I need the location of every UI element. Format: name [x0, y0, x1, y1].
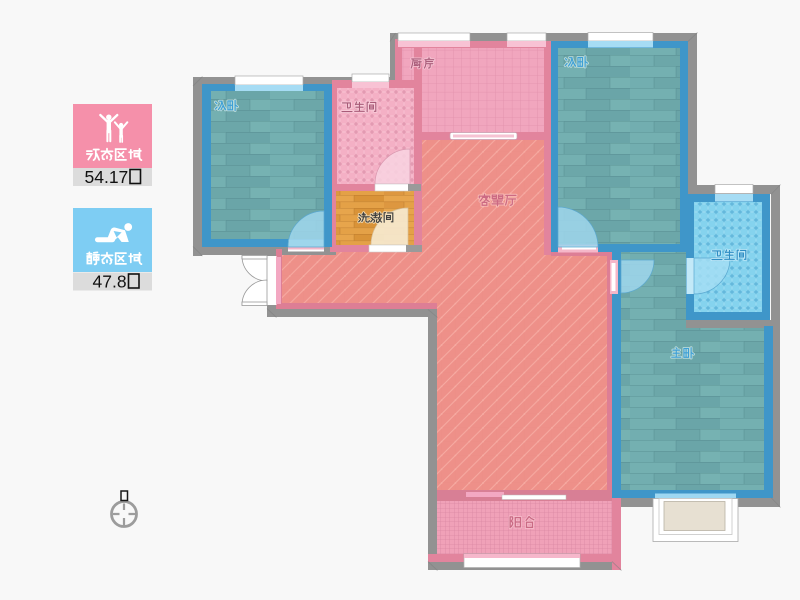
svg-text:54.17: 54.17: [85, 167, 129, 187]
svg-text:47.8: 47.8: [93, 272, 127, 292]
